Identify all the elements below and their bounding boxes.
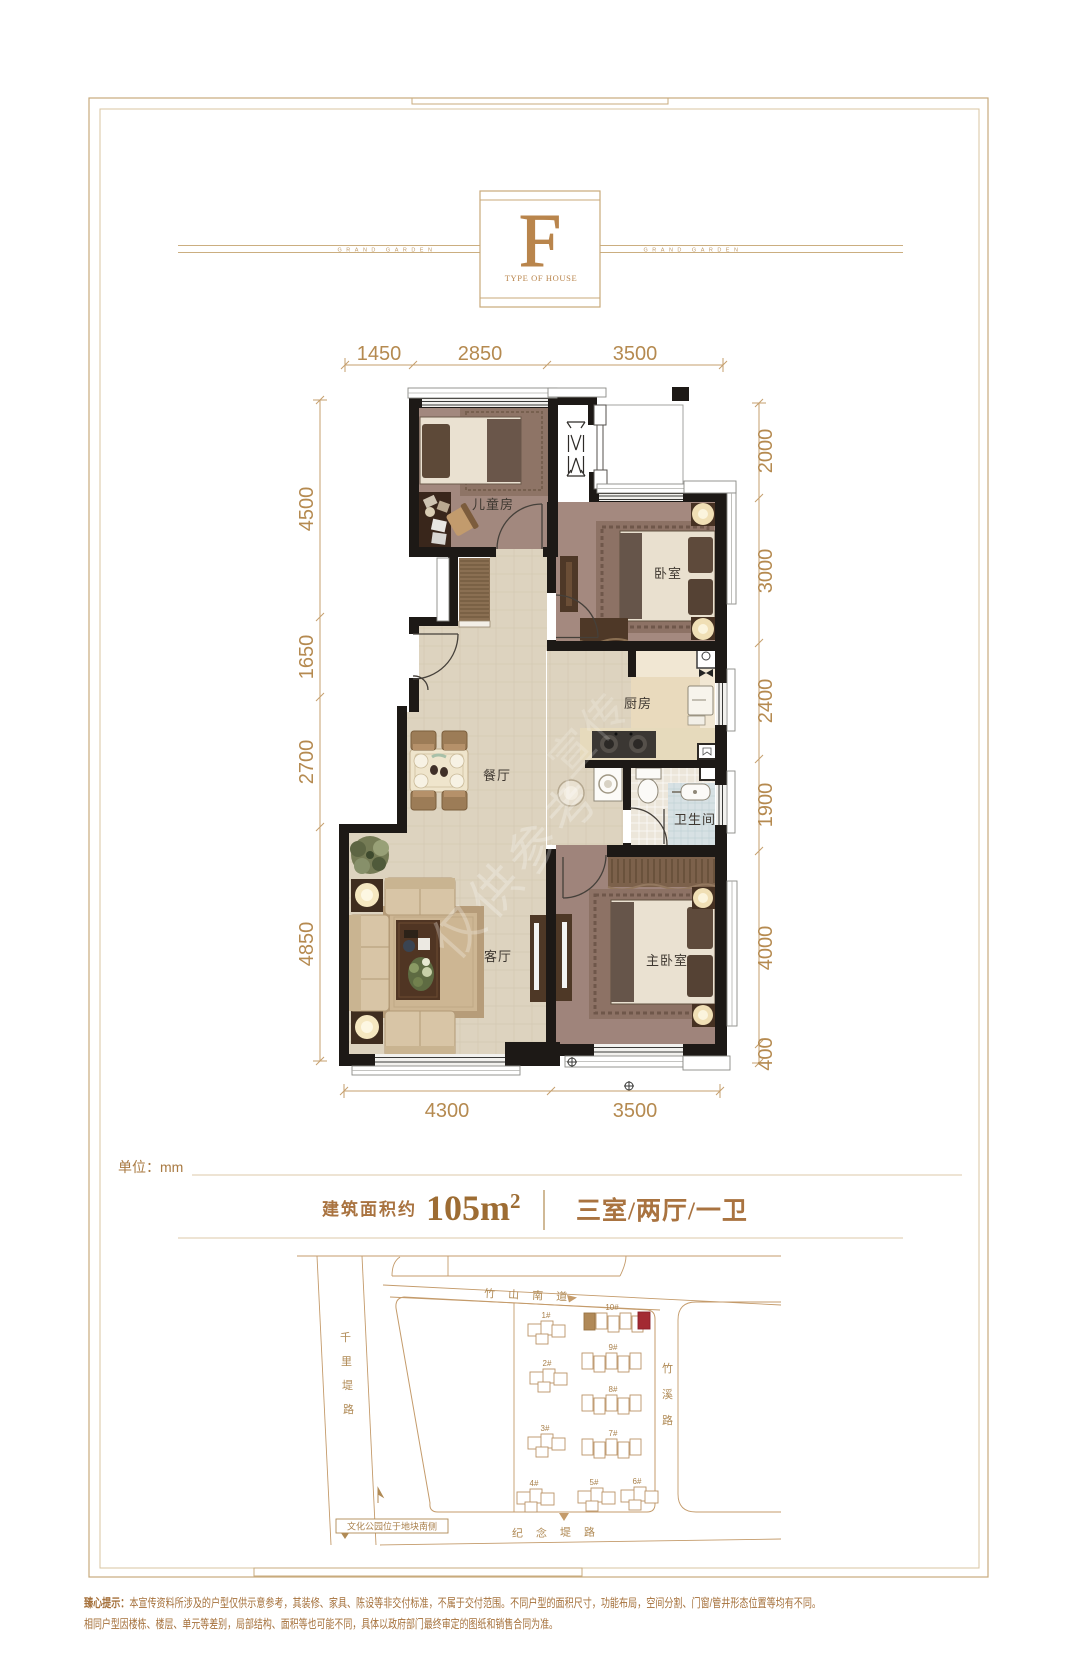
svg-text:2400: 2400 (755, 679, 777, 724)
svg-text:堤: 堤 (342, 1379, 353, 1392)
svg-text:GRAND GARDEN: GRAND GARDEN (644, 248, 743, 254)
svg-text:臻心提示：本宣传资料所涉及的户型仅供示意参考，其装修、家具、: 臻心提示：本宣传资料所涉及的户型仅供示意参考，其装修、家具、陈设等非交付标准，不… (84, 1595, 821, 1610)
svg-text:相同户型因楼栋、楼层、单元等差别，局部结构、面积等也可能不同: 相同户型因楼栋、楼层、单元等差别，局部结构、面积等也可能不同，具体以政府部门最终… (84, 1616, 558, 1631)
svg-text:南: 南 (532, 1289, 544, 1303)
svg-text:7#: 7# (609, 1429, 618, 1438)
svg-text:3#: 3# (541, 1424, 550, 1433)
svg-text:儿童房: 儿童房 (472, 497, 514, 512)
svg-text:千: 千 (340, 1331, 351, 1344)
svg-text:餐厅: 餐厅 (483, 768, 511, 783)
svg-text:2850: 2850 (458, 343, 503, 365)
svg-text:105m2: 105m2 (426, 1188, 521, 1228)
svg-text:主卧室: 主卧室 (646, 953, 688, 968)
svg-text:路: 路 (662, 1414, 673, 1427)
svg-text:10#: 10# (605, 1303, 619, 1312)
svg-text:4500: 4500 (296, 487, 318, 532)
svg-text:卧室: 卧室 (654, 566, 682, 581)
svg-text:建筑面积约: 建筑面积约 (322, 1199, 417, 1219)
svg-text:1900: 1900 (755, 783, 777, 828)
svg-text:客厅: 客厅 (484, 949, 512, 964)
svg-text:卫生间: 卫生间 (674, 812, 716, 827)
svg-text:堤: 堤 (560, 1526, 571, 1539)
svg-text:念: 念 (536, 1526, 547, 1540)
svg-text:路: 路 (584, 1526, 595, 1539)
svg-text:4850: 4850 (296, 922, 318, 967)
svg-text:8#: 8# (609, 1385, 618, 1394)
svg-text:竹: 竹 (662, 1361, 673, 1375)
svg-text:2700: 2700 (296, 740, 318, 785)
svg-text:9#: 9# (609, 1343, 618, 1352)
svg-text:纪: 纪 (512, 1527, 523, 1540)
svg-text:文化公园位于地块南侧: 文化公园位于地块南侧 (347, 1521, 437, 1532)
svg-text:2#: 2# (543, 1359, 552, 1368)
svg-text:1450: 1450 (357, 343, 402, 365)
svg-text:道: 道 (556, 1289, 568, 1304)
svg-text:3500: 3500 (613, 343, 658, 365)
svg-text:1650: 1650 (296, 635, 318, 680)
svg-text:4#: 4# (530, 1479, 539, 1488)
svg-text:里: 里 (341, 1355, 352, 1368)
svg-text:三室/两厅/一卫: 三室/两厅/一卫 (576, 1196, 748, 1225)
svg-text:5#: 5# (590, 1478, 599, 1487)
svg-text:竹: 竹 (484, 1286, 496, 1301)
svg-text:单位：mm: 单位：mm (118, 1159, 183, 1175)
svg-text:3500: 3500 (613, 1100, 658, 1122)
svg-text:6#: 6# (633, 1477, 642, 1486)
svg-text:3000: 3000 (755, 549, 777, 594)
svg-text:4000: 4000 (755, 926, 777, 971)
svg-text:F: F (519, 199, 561, 283)
svg-text:山: 山 (508, 1288, 520, 1302)
svg-text:400: 400 (755, 1037, 777, 1070)
svg-text:TYPE OF HOUSE: TYPE OF HOUSE (505, 273, 578, 283)
svg-text:4300: 4300 (425, 1100, 470, 1122)
svg-text:路: 路 (343, 1403, 354, 1416)
svg-text:溪: 溪 (662, 1388, 673, 1401)
svg-text:2000: 2000 (755, 429, 777, 474)
svg-text:1#: 1# (542, 1311, 551, 1320)
svg-text:GRAND GARDEN: GRAND GARDEN (338, 248, 437, 254)
